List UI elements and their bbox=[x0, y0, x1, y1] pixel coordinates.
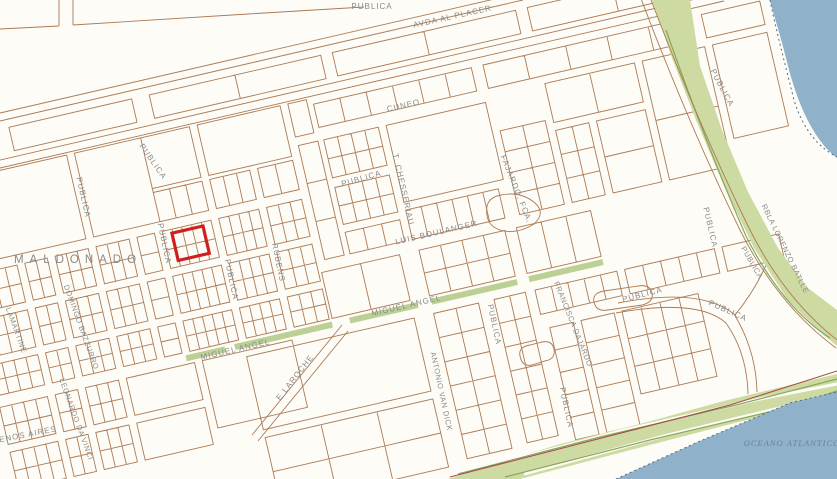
street-label: PUBLICA bbox=[351, 2, 392, 11]
city-label: MALDONADO bbox=[14, 254, 142, 266]
cadastral-map[interactable]: PUBLICA AVDA AL PLACER CUNEO T. CHESSERI… bbox=[0, 0, 837, 479]
road-lines bbox=[0, 0, 769, 441]
east-curve-roads bbox=[616, 258, 769, 394]
street-label: T. CHESSERIAU bbox=[391, 153, 416, 227]
street-label: PUBLICA bbox=[701, 206, 719, 248]
street-label: MIGUEL ANGEL bbox=[371, 293, 442, 318]
street-label: PUBLICA bbox=[223, 258, 240, 300]
street-label: PUBLICA bbox=[486, 303, 503, 345]
street-label: PUBLICA bbox=[707, 298, 748, 323]
top-left-parcel-lines bbox=[0, 0, 364, 29]
street-label: FRANCISCA DAJARDO bbox=[552, 280, 594, 368]
water-top-right bbox=[770, 0, 837, 158]
street-label: PUBLICA bbox=[138, 142, 169, 181]
street-label: PUBLICA bbox=[156, 222, 173, 264]
selected-parcel-outline[interactable] bbox=[172, 226, 209, 261]
lower-wedge-road bbox=[0, 0, 724, 168]
street-label: PUBLICA bbox=[74, 176, 92, 218]
map-viewport[interactable]: PUBLICA AVDA AL PLACER CUNEO T. CHESSERI… bbox=[0, 0, 837, 479]
street-label: PUBLICA bbox=[709, 68, 736, 109]
fajardo-loop-island bbox=[487, 194, 541, 232]
labels-layer: PUBLICA AVDA AL PLACER CUNEO T. CHESSERI… bbox=[0, 2, 837, 461]
street-label: AVDA AL PLACER bbox=[412, 3, 492, 29]
ocean-label: OCEANO ATLANTICO bbox=[744, 438, 837, 448]
street-label: PUBLICA bbox=[621, 285, 663, 304]
street-label: PUBLICA bbox=[558, 386, 575, 428]
street-label: ANTONIO VAN DICK bbox=[429, 351, 455, 432]
street-label: RUBENS bbox=[270, 242, 287, 282]
street-label: CUNEO bbox=[386, 97, 421, 113]
